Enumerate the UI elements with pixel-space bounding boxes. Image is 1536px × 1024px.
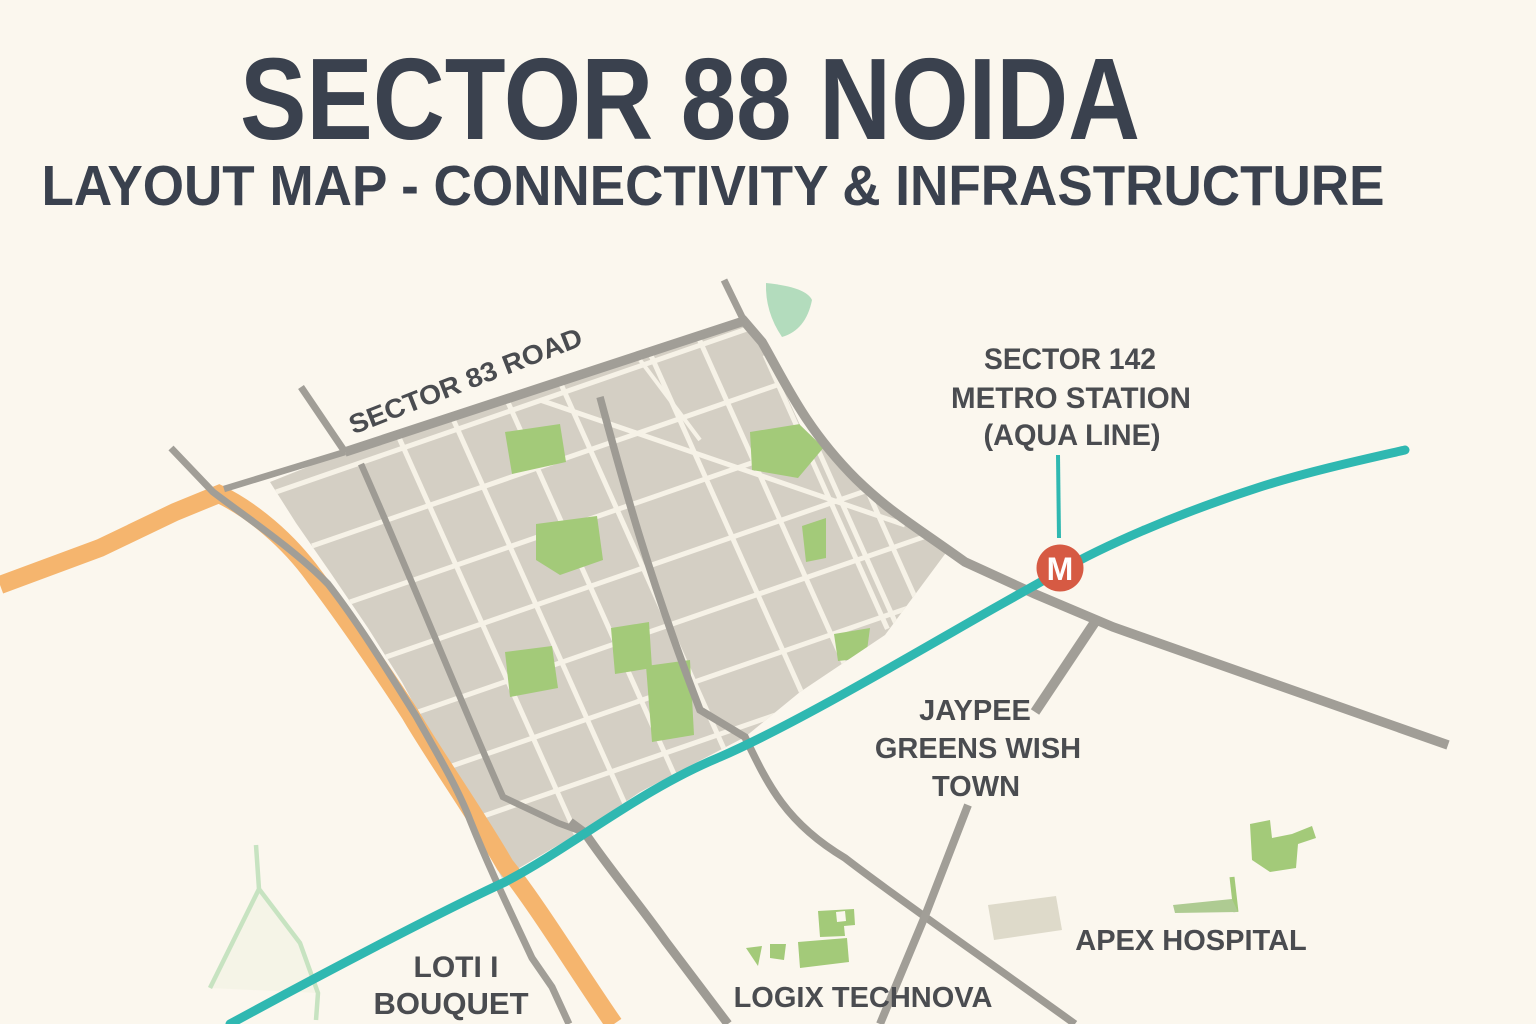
svg-text:LAYOUT MAP - CONNECTIVITY & IN: LAYOUT MAP - CONNECTIVITY & INFRASTRUCTU… (42, 154, 1385, 218)
svg-text:APEX HOSPITAL: APEX HOSPITAL (1075, 925, 1307, 957)
svg-text:LOTI I: LOTI I (414, 951, 499, 984)
svg-text:JAYPEE: JAYPEE (919, 695, 1031, 727)
svg-text:SECTOR 142: SECTOR 142 (984, 343, 1156, 376)
svg-text:BOUQUET: BOUQUET (374, 986, 529, 1021)
svg-text:M: M (1047, 551, 1074, 587)
svg-text:SECTOR 88 NOIDA: SECTOR 88 NOIDA (240, 34, 1140, 164)
svg-text:LOGIX TECHNOVA: LOGIX TECHNOVA (734, 982, 993, 1014)
svg-text:GREENS WISH: GREENS WISH (875, 733, 1081, 765)
svg-text:(AQUA LINE): (AQUA LINE) (984, 419, 1161, 452)
svg-text:METRO STATION: METRO STATION (951, 382, 1191, 415)
svg-text:TOWN: TOWN (932, 771, 1020, 803)
